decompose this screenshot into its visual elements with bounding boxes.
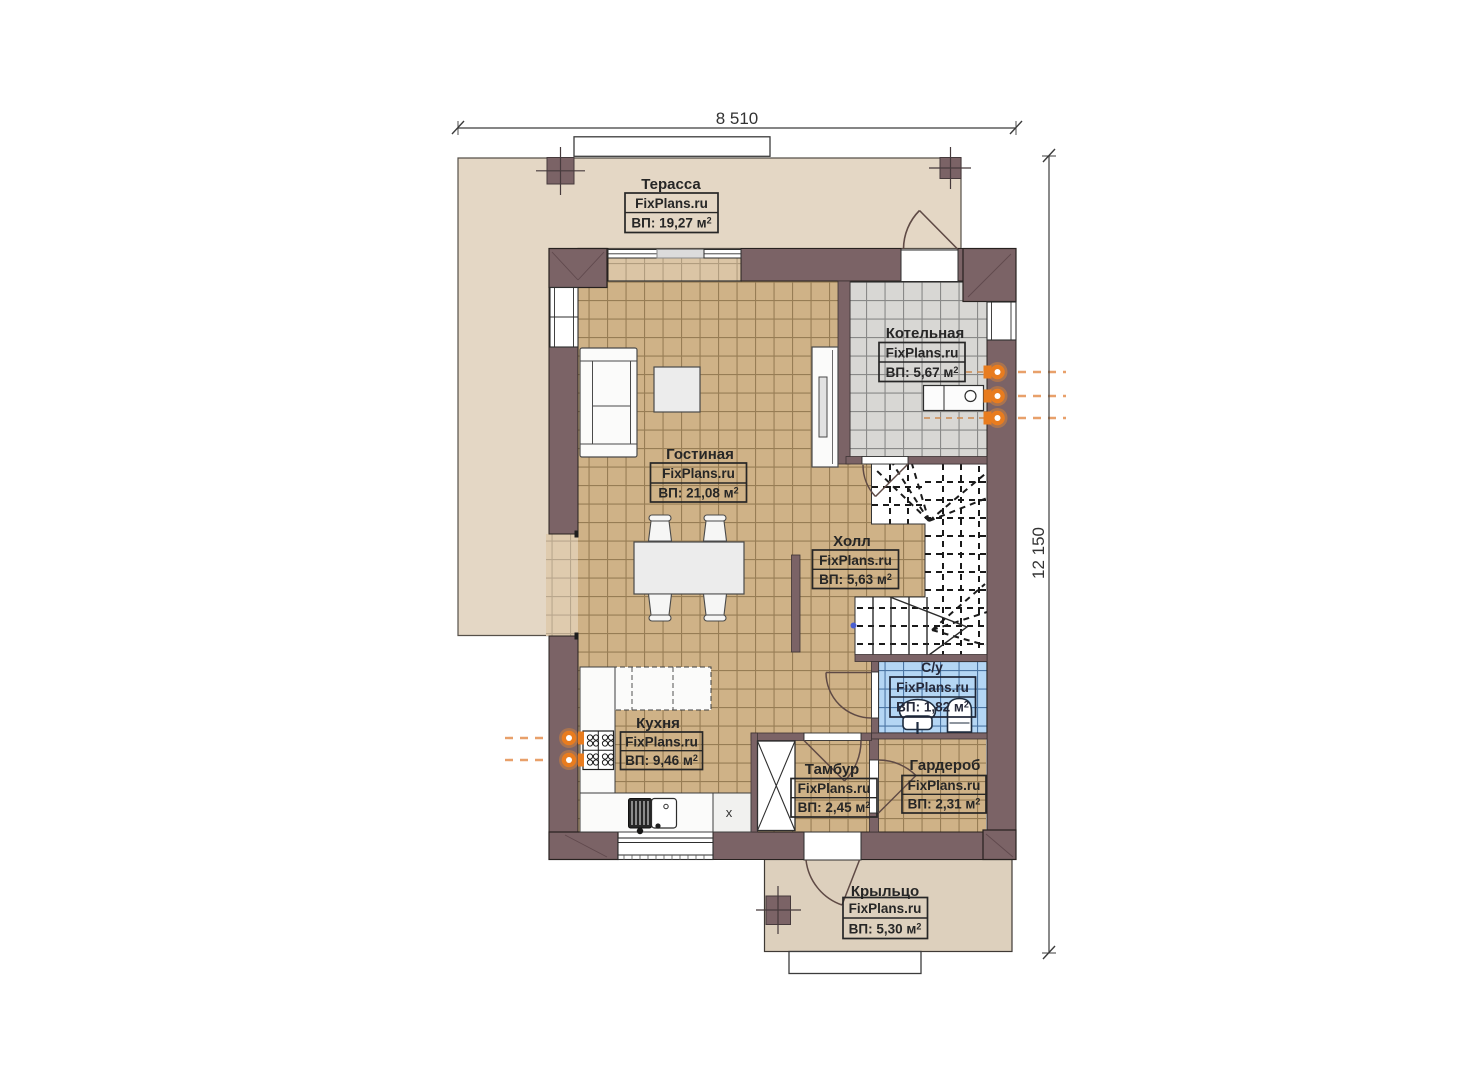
svg-text:Гардероб: Гардероб [910,757,981,774]
svg-text:Холл: Холл [833,533,871,550]
svg-text:ВП: 5,63 м2: ВП: 5,63 м2 [819,572,892,587]
svg-text:С/у: С/у [921,659,943,675]
svg-text:FixPlans.ru: FixPlans.ru [896,680,969,695]
svg-text:ВП: 2,45 м2: ВП: 2,45 м2 [798,800,871,815]
svg-text:FixPlans.ru: FixPlans.ru [625,735,698,750]
svg-text:Терасса: Терасса [641,176,701,193]
svg-text:FixPlans.ru: FixPlans.ru [635,196,708,211]
svg-text:Тамбур: Тамбур [805,761,859,778]
svg-text:ВП: 21,08 м2: ВП: 21,08 м2 [658,486,738,501]
svg-text:ВП: 1,82 м2: ВП: 1,82 м2 [896,700,969,715]
svg-text:ВП: 19,27 м2: ВП: 19,27 м2 [631,216,711,231]
svg-text:FixPlans.ru: FixPlans.ru [908,778,981,793]
svg-text:FixPlans.ru: FixPlans.ru [886,346,959,361]
svg-text:FixPlans.ru: FixPlans.ru [798,781,871,796]
svg-text:8 510: 8 510 [716,109,759,128]
svg-text:FixPlans.ru: FixPlans.ru [662,466,735,481]
svg-text:FixPlans.ru: FixPlans.ru [849,901,922,916]
svg-text:Котельная: Котельная [886,325,965,342]
svg-text:ВП: 2,31 м2: ВП: 2,31 м2 [908,797,981,812]
svg-text:12 150: 12 150 [1029,527,1048,579]
svg-text:FixPlans.ru: FixPlans.ru [819,553,892,568]
svg-text:ВП: 9,46 м2: ВП: 9,46 м2 [625,753,698,768]
svg-text:x: x [726,805,733,820]
svg-text:Кухня: Кухня [636,715,680,732]
svg-text:ВП: 5,30 м2: ВП: 5,30 м2 [849,922,922,937]
svg-text:Гостиная: Гостиная [666,446,734,463]
svg-text:ВП: 5,67 м2: ВП: 5,67 м2 [886,365,959,380]
